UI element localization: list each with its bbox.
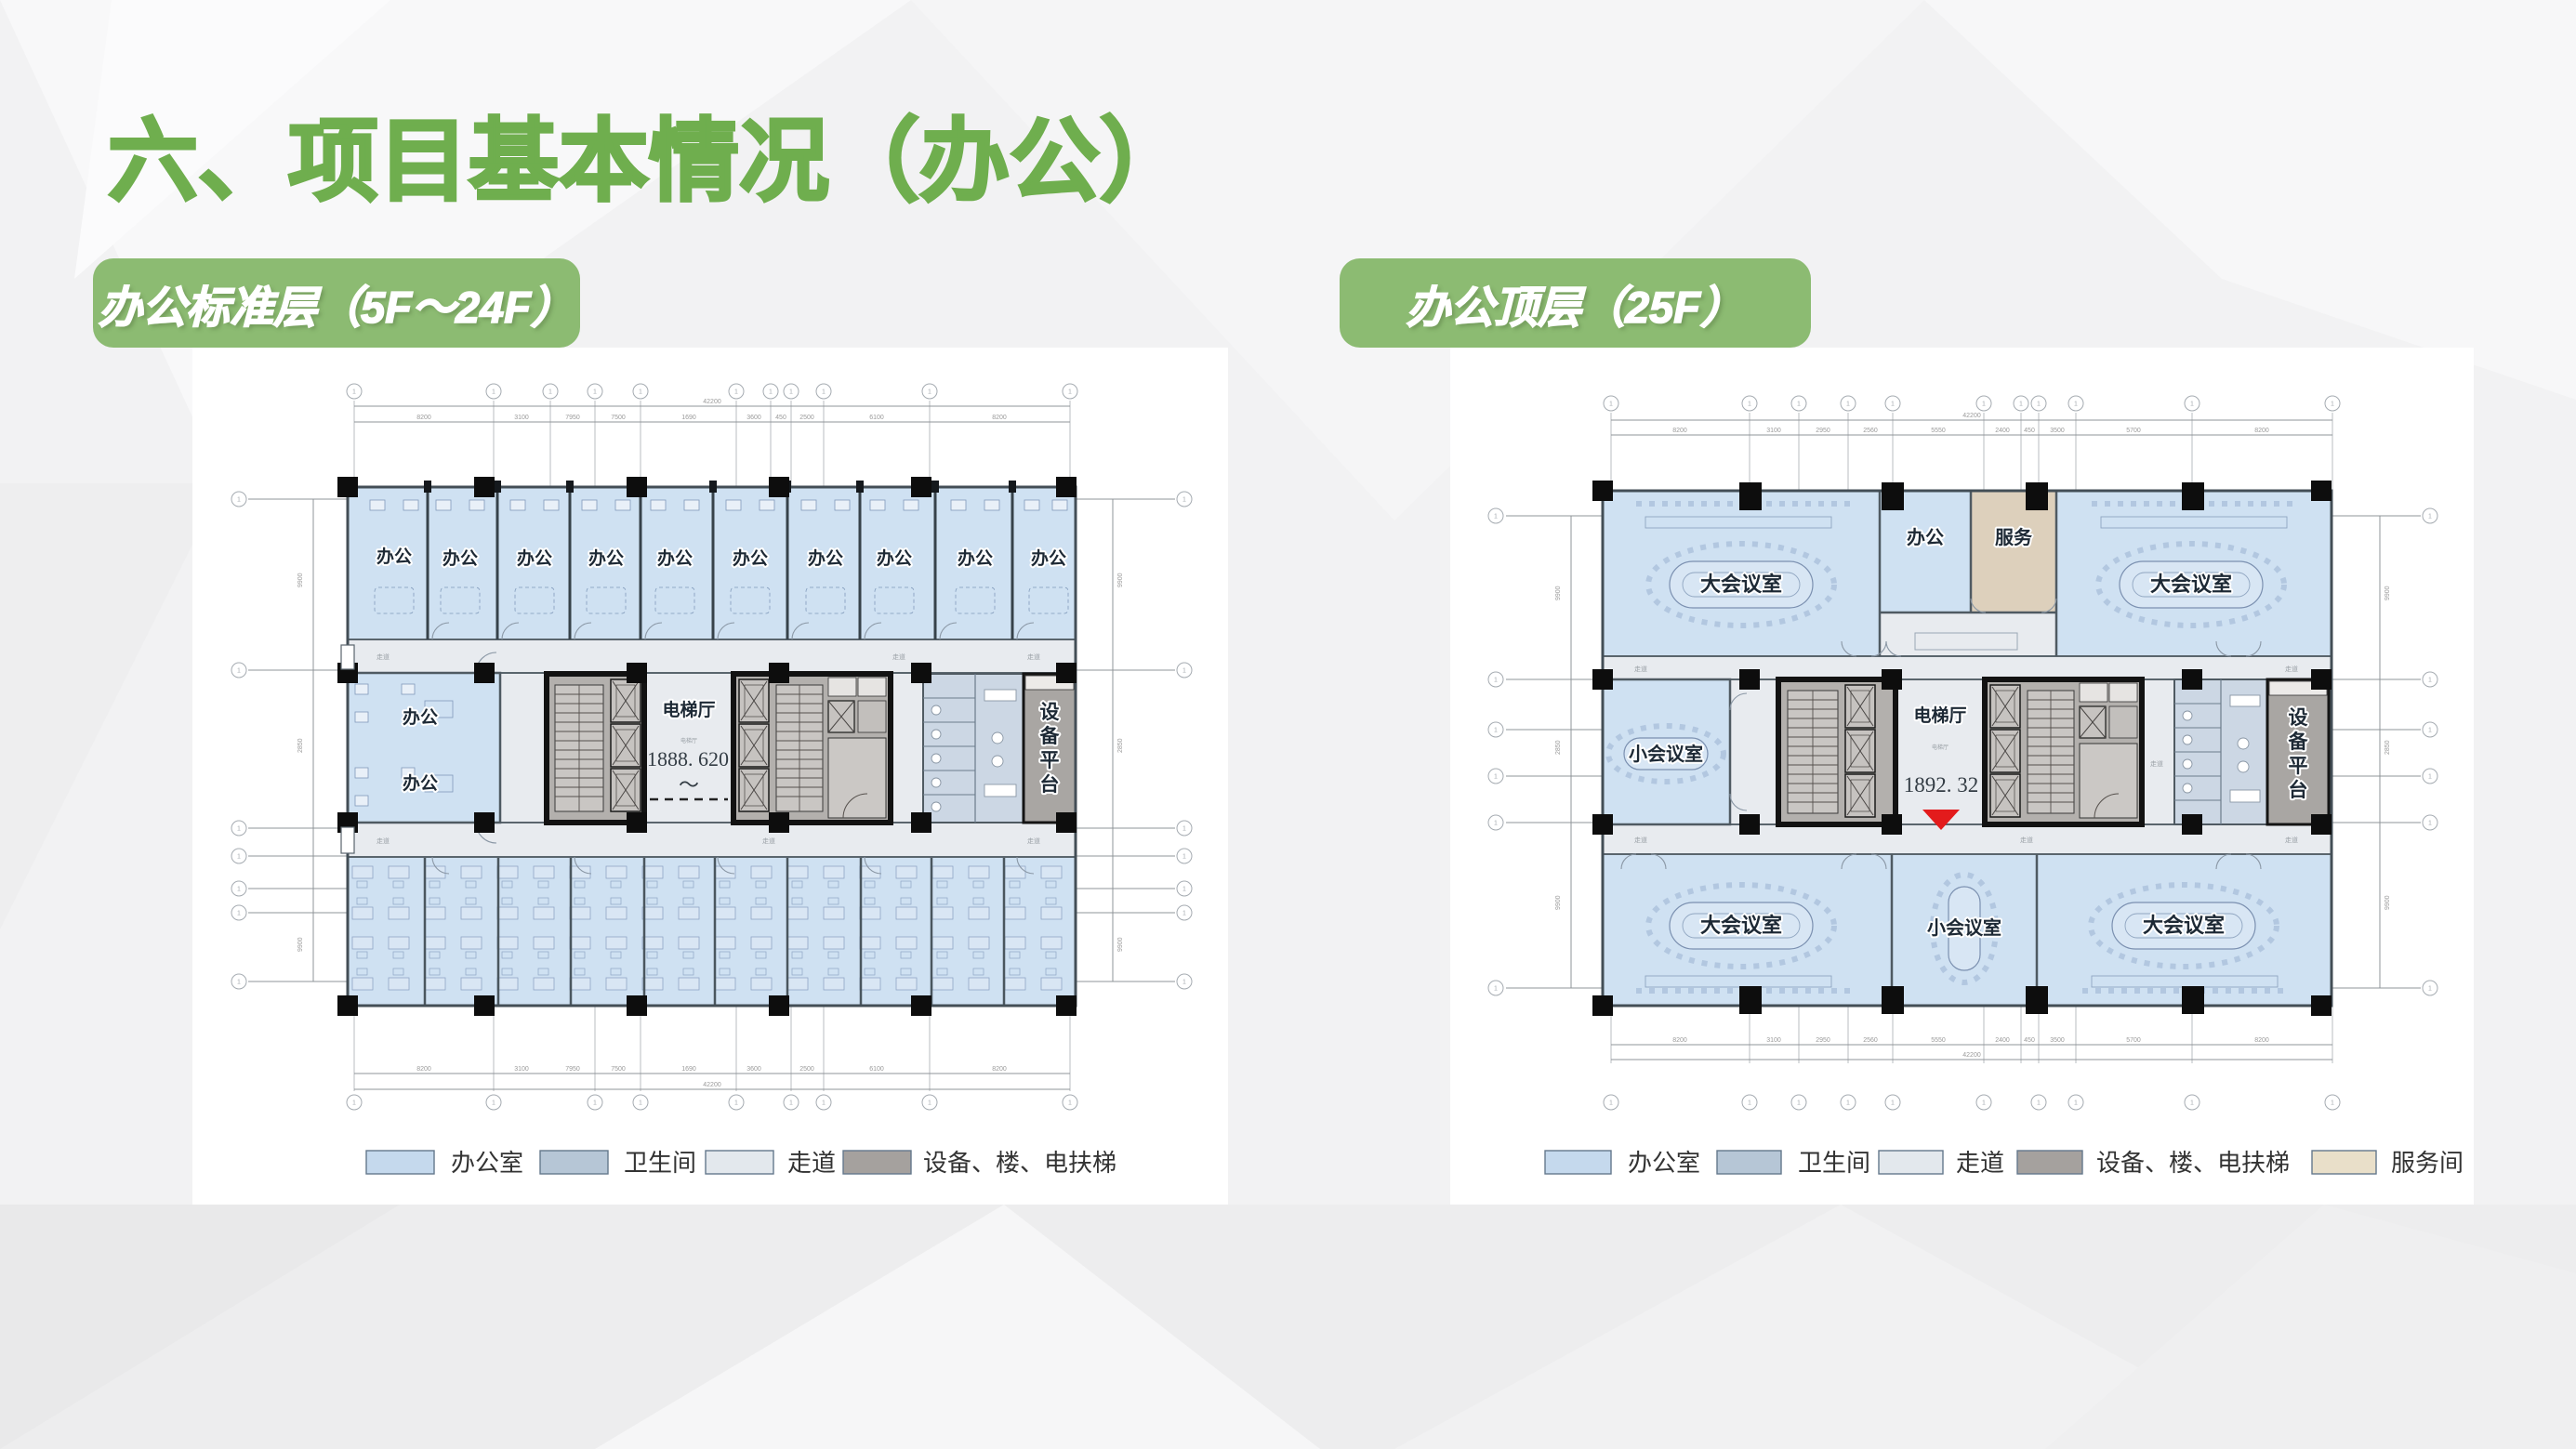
svg-text:办公: 办公 [376,546,412,567]
svg-text:电梯厅: 电梯厅 [1913,705,1966,726]
svg-text:办公: 办公 [877,547,912,569]
svg-text:3500: 3500 [2050,428,2065,434]
svg-text:办公: 办公 [1031,547,1066,569]
svg-text:办公: 办公 [443,547,478,569]
svg-text:2560: 2560 [1863,1037,1878,1044]
svg-text:9900: 9900 [297,573,304,587]
svg-text:1690: 1690 [681,1066,696,1073]
svg-text:走道: 走道 [2150,759,2163,768]
svg-text:42200: 42200 [1962,1052,1981,1059]
svg-text:办公室: 办公室 [451,1149,523,1177]
svg-text:42200: 42200 [703,399,721,405]
svg-text:1888. 620: 1888. 620 [647,747,729,771]
svg-text:大会议室: 大会议室 [2143,914,2225,937]
svg-text:5700: 5700 [2126,1037,2141,1044]
svg-text:办公: 办公 [733,547,768,569]
svg-text:卫生间: 卫生间 [1798,1149,1870,1177]
svg-text:5550: 5550 [1931,428,1946,434]
svg-text:8200: 8200 [2254,1037,2269,1044]
svg-text:3100: 3100 [514,1066,529,1073]
svg-text:办公室: 办公室 [1628,1149,1700,1177]
svg-text:3600: 3600 [746,415,761,421]
svg-text:办公: 办公 [958,547,993,569]
svg-text:9900: 9900 [1555,895,1562,910]
svg-text:小会议室: 小会议室 [1629,743,1703,765]
svg-text:450: 450 [775,415,786,421]
svg-text:8200: 8200 [992,1066,1007,1073]
svg-text:2500: 2500 [799,1066,814,1073]
svg-text:大会议室: 大会议室 [2150,573,2232,596]
svg-text:办公: 办公 [517,547,552,569]
svg-text:电梯厅: 电梯厅 [662,699,715,720]
svg-text:办公: 办公 [588,547,624,569]
svg-text:办公: 办公 [657,547,693,569]
svg-text:走道: 走道 [1027,652,1040,661]
svg-text:6100: 6100 [869,1066,884,1073]
svg-text:2500: 2500 [799,415,814,421]
svg-text:办公: 办公 [403,706,438,728]
svg-text:450: 450 [2024,1037,2035,1044]
svg-text:42200: 42200 [1962,413,1981,419]
svg-text:8200: 8200 [416,415,431,421]
svg-text:450: 450 [2024,428,2035,434]
svg-text:设: 设 [2289,707,2308,729]
svg-text:8200: 8200 [1672,1037,1687,1044]
svg-text:8200: 8200 [992,415,1007,421]
svg-text:8200: 8200 [2254,428,2269,434]
svg-text:办公: 办公 [1907,526,1944,548]
svg-text:～: ～ [679,773,699,797]
svg-text:7950: 7950 [565,1066,580,1073]
svg-text:平: 平 [1040,750,1060,771]
svg-text:2560: 2560 [1863,428,1878,434]
svg-text:台: 台 [1040,773,1060,796]
svg-text:2850: 2850 [2384,740,2391,755]
svg-text:3100: 3100 [1766,1037,1781,1044]
svg-text:5700: 5700 [2126,428,2141,434]
svg-text:走道: 走道 [1027,836,1040,845]
svg-text:走道: 走道 [762,836,775,845]
svg-text:大会议室: 大会议室 [1700,914,1782,937]
svg-text:设: 设 [1040,702,1060,723]
svg-text:1892. 32: 1892. 32 [1904,773,1979,797]
svg-text:8200: 8200 [1672,428,1687,434]
svg-text:电梯厅: 电梯厅 [680,737,697,744]
svg-text:备: 备 [2288,731,2309,753]
svg-text:设备、楼、电扶梯: 设备、楼、电扶梯 [2096,1149,2290,1177]
svg-text:9900: 9900 [2384,586,2391,600]
svg-text:平: 平 [2289,756,2308,777]
svg-text:7500: 7500 [611,415,626,421]
svg-text:2950: 2950 [1816,1037,1830,1044]
svg-text:走道: 走道 [892,652,905,661]
svg-text:走道: 走道 [1956,1149,2004,1177]
svg-text:2400: 2400 [1995,1037,2010,1044]
svg-text:1690: 1690 [681,415,696,421]
svg-text:3600: 3600 [746,1066,761,1073]
svg-text:9900: 9900 [1555,586,1562,600]
svg-text:2850: 2850 [1117,738,1124,753]
svg-text:大会议室: 大会议室 [1700,573,1782,596]
svg-text:6100: 6100 [869,415,884,421]
svg-text:7950: 7950 [565,415,580,421]
svg-text:2950: 2950 [1816,428,1830,434]
svg-text:9900: 9900 [297,937,304,952]
svg-text:台: 台 [2289,779,2308,801]
svg-text:办公: 办公 [808,547,843,569]
svg-text:8200: 8200 [416,1066,431,1073]
svg-text:卫生间: 卫生间 [624,1149,696,1177]
svg-text:2850: 2850 [1555,740,1562,755]
svg-text:7500: 7500 [611,1066,626,1073]
svg-text:走道: 走道 [787,1149,836,1177]
svg-text:办公: 办公 [403,772,438,794]
svg-text:42200: 42200 [703,1082,721,1088]
svg-text:电梯厅: 电梯厅 [1932,744,1949,751]
svg-text:走道: 走道 [2285,836,2298,844]
svg-text:9900: 9900 [2384,895,2391,910]
svg-text:服务间: 服务间 [2391,1149,2464,1177]
svg-text:备: 备 [1039,725,1061,747]
svg-text:走道: 走道 [2020,836,2033,844]
svg-text:走道: 走道 [1634,665,1647,673]
svg-text:3500: 3500 [2050,1037,2065,1044]
svg-text:3100: 3100 [1766,428,1781,434]
svg-text:小会议室: 小会议室 [1927,916,2001,939]
svg-text:2400: 2400 [1995,428,2010,434]
svg-text:9900: 9900 [1117,573,1124,587]
svg-text:2850: 2850 [297,738,304,753]
svg-text:服务: 服务 [1995,526,2033,548]
svg-text:设备、楼、电扶梯: 设备、楼、电扶梯 [923,1149,1116,1177]
svg-text:5550: 5550 [1931,1037,1946,1044]
svg-text:走道: 走道 [376,652,390,661]
svg-text:3100: 3100 [514,415,529,421]
svg-text:9900: 9900 [1117,937,1124,952]
svg-text:走道: 走道 [2285,665,2298,673]
svg-text:走道: 走道 [1634,836,1647,844]
svg-text:走道: 走道 [376,836,390,845]
